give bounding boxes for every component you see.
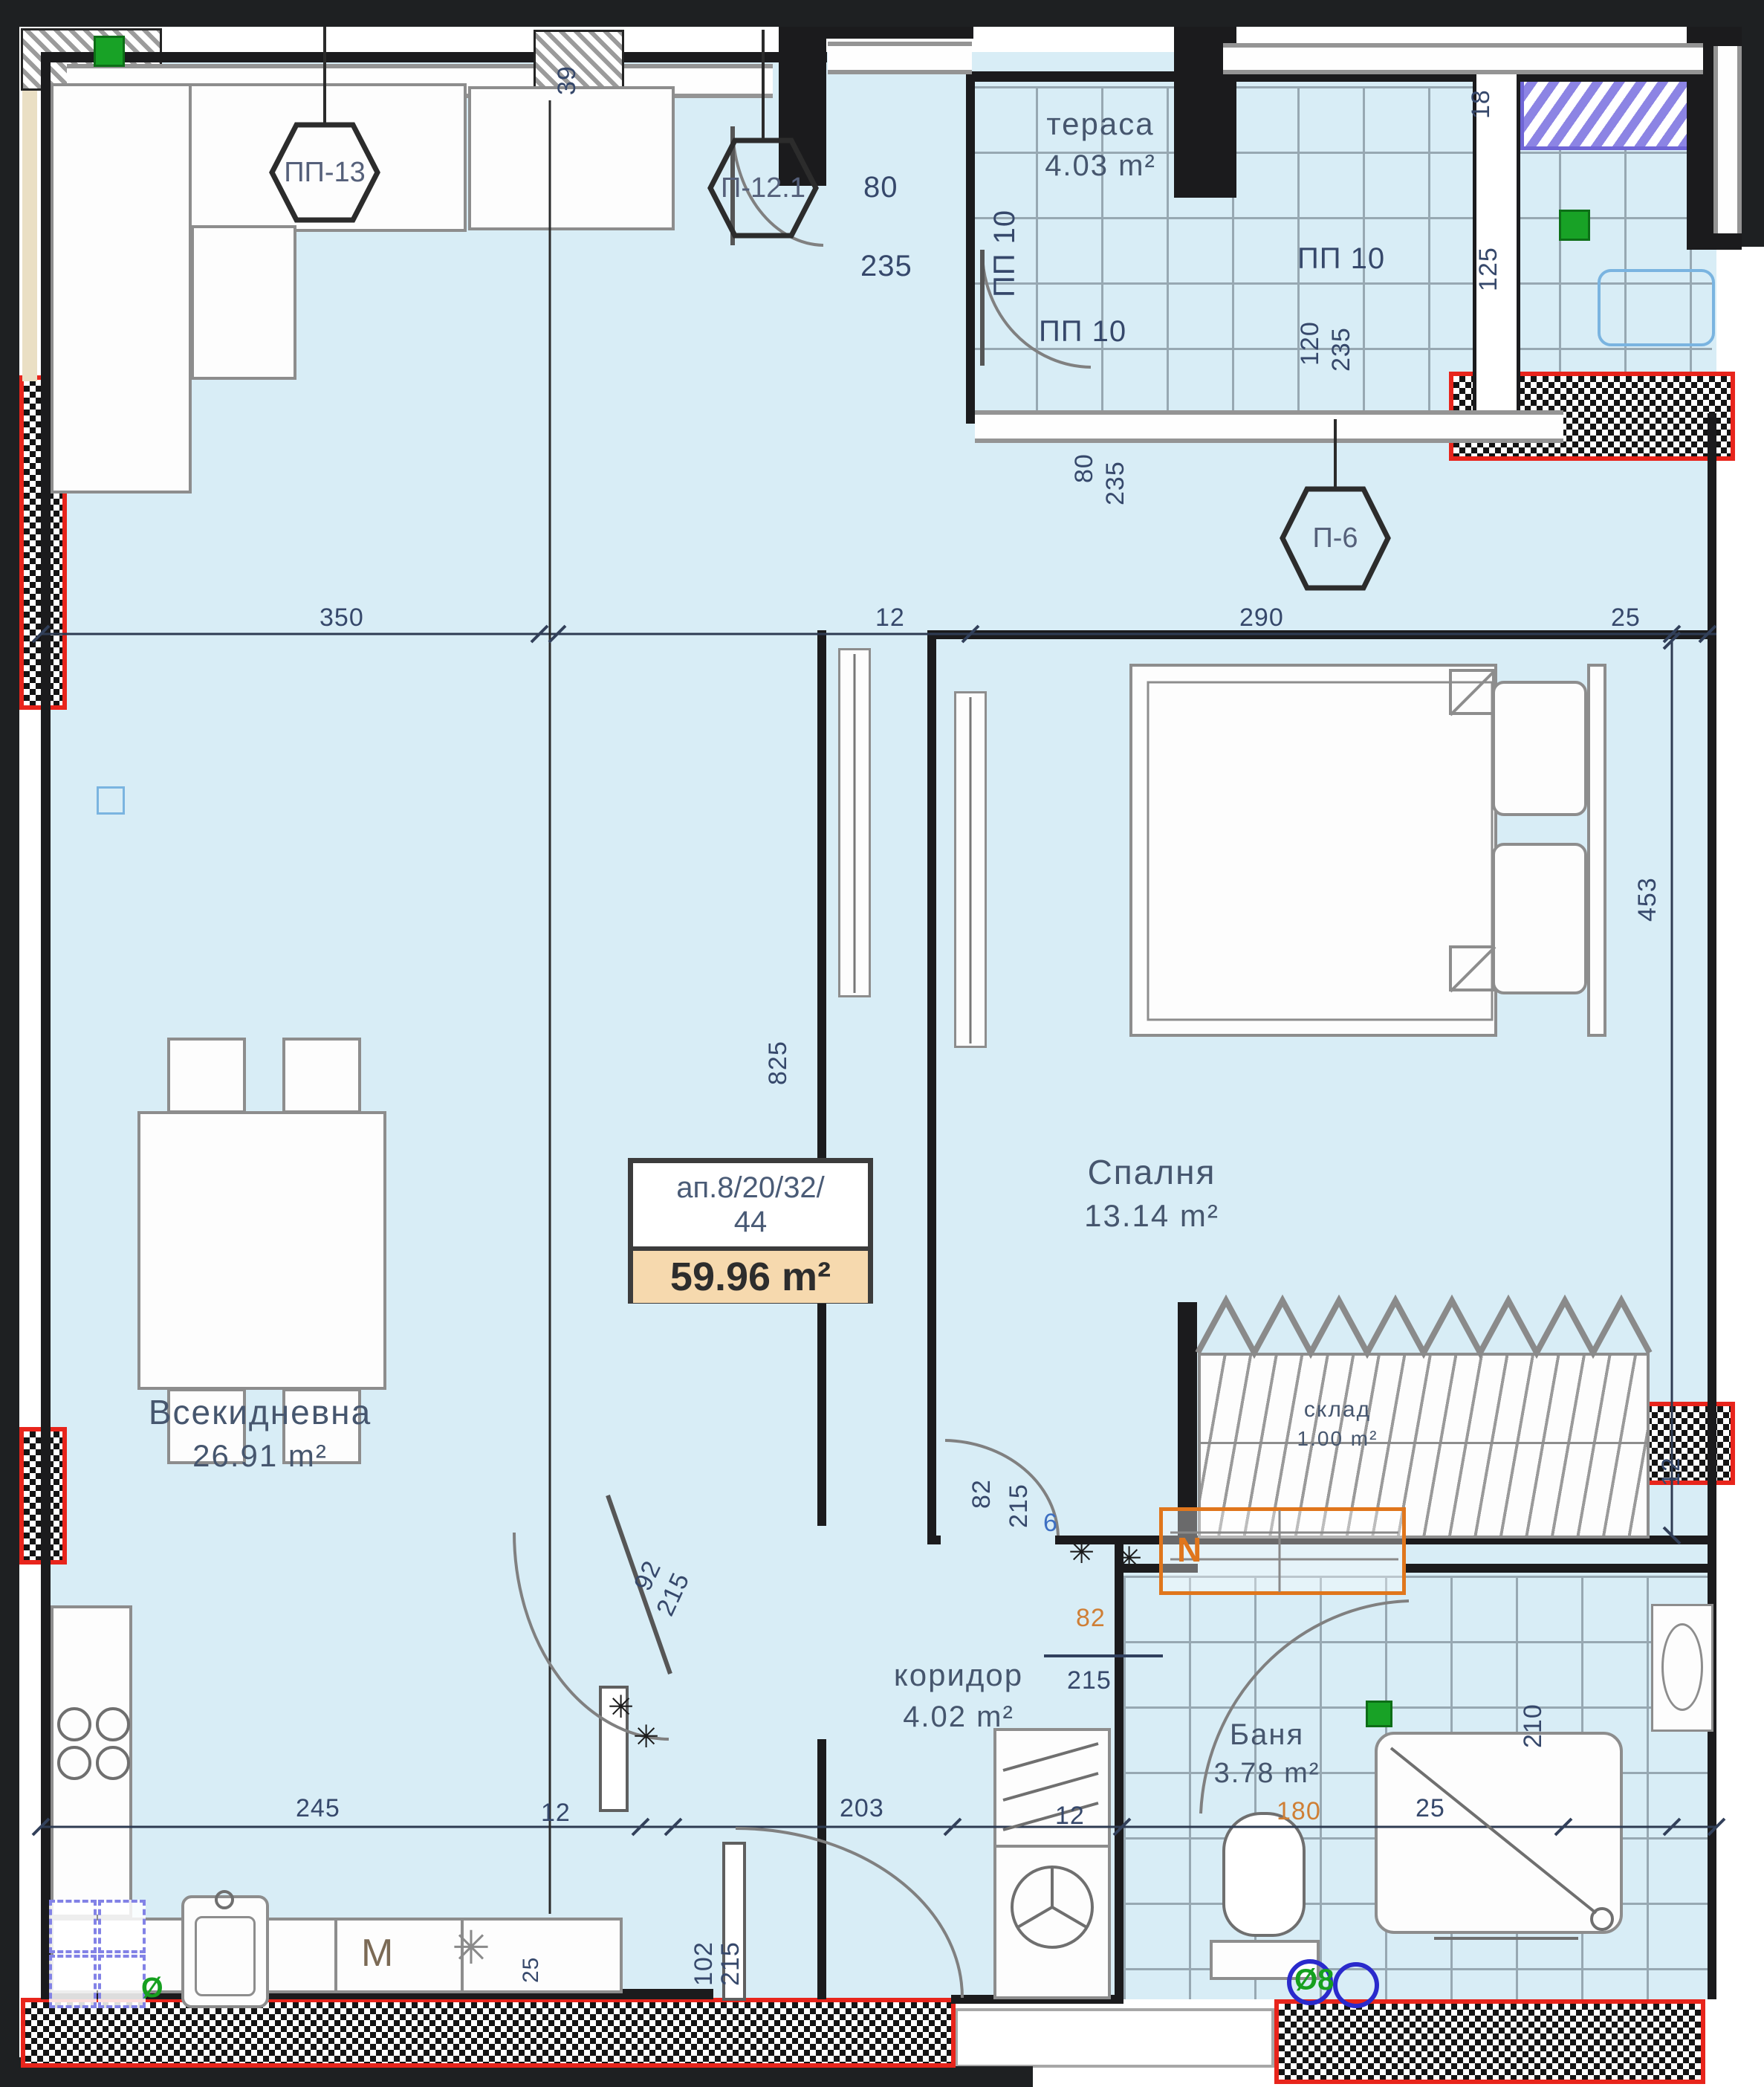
door-tag-pp13: ПП-13 — [269, 120, 380, 224]
fridge-dashed-3 — [49, 1955, 97, 2008]
panel-label-pp10-h1: ПП 10 — [1039, 315, 1126, 349]
dim-18: 18 — [1467, 89, 1496, 119]
unit-label-box: ап.8/20/32/ 44 59.96 m² — [628, 1158, 873, 1304]
frame-bottom-mid — [372, 2066, 1033, 2087]
fridge-dashed-4 — [98, 1955, 146, 2008]
dining-chair-2 — [282, 1038, 361, 1113]
entrance-landing — [955, 2008, 1274, 2068]
door-tag-p121-label: П-12.1 — [707, 136, 819, 240]
dim-125: 125 — [1474, 247, 1503, 291]
duct-shaft-1 — [838, 648, 871, 997]
dim-82-bath-door: 82 — [1076, 1604, 1106, 1633]
bath-area: 3.78 m² — [1181, 1756, 1352, 1792]
label-bedroom: Спалня 13.14 m² — [1040, 1148, 1263, 1237]
wall-living-right-upper — [817, 630, 826, 1526]
dim-825: 825 — [764, 1041, 793, 1085]
dim-80-hall: 80 — [863, 171, 898, 204]
dim-210: 210 — [1519, 1703, 1548, 1748]
storage-name: склад — [1256, 1394, 1419, 1426]
unit-id-line2: 44 — [734, 1205, 768, 1239]
dim-25-kitchen: 25 — [519, 1957, 544, 1983]
sensor-green-bath — [1366, 1701, 1392, 1727]
bedroom-name: Спалня — [1040, 1148, 1263, 1196]
nightstand-1 — [1449, 669, 1495, 715]
bed-pillow-1 — [1492, 681, 1587, 816]
post-mark-icon-1: ✳ — [608, 1689, 634, 1725]
nightstand-2 — [1449, 945, 1495, 991]
dim-80-terrace-door: 80 — [1070, 453, 1099, 483]
counter-divider-2 — [334, 1919, 337, 1992]
drain-phi-icon: Ø — [141, 1973, 163, 2005]
fire-wall-bottom — [21, 1998, 956, 2068]
wall-living-right-lower — [817, 1739, 826, 1999]
unit-area-value: 59.96 m² — [670, 1254, 831, 1300]
toilet-bowl — [1222, 1812, 1306, 1937]
sofa-left — [51, 83, 192, 494]
dim-25-bottom: 25 — [1416, 1794, 1445, 1823]
label-terrace: тераса 4.03 m² — [1015, 103, 1186, 185]
label-living: Всекидневна 26.91 m² — [104, 1388, 416, 1477]
unit-id-line1: ап.8/20/32/ — [676, 1171, 825, 1205]
dim-203: 203 — [840, 1794, 884, 1823]
wall-left — [41, 52, 51, 1999]
terrace-name: тераса — [1015, 103, 1186, 146]
unit-area: 59.96 m² — [633, 1246, 868, 1303]
dim-180: 180 — [1277, 1797, 1321, 1826]
window-terrace-top — [1223, 43, 1703, 74]
post-mark-icon-2: ✳ — [633, 1718, 659, 1755]
corridor-area: 4.02 m² — [855, 1698, 1063, 1736]
dim-12-top: 12 — [875, 604, 905, 632]
dim-120-terrace: 120 — [1296, 321, 1325, 366]
bed-headboard — [1587, 664, 1606, 1037]
fridge-dashed-2 — [98, 1900, 146, 1953]
wall-bedroom-left — [927, 630, 936, 1544]
terrace-area: 4.03 m² — [1015, 146, 1186, 185]
dim-290: 290 — [1239, 604, 1284, 632]
dim-235-terrace: 235 — [1327, 327, 1356, 372]
pipe-diameter-label: Ø8 — [1294, 1964, 1334, 1997]
wall-terrace-left — [966, 74, 975, 424]
kitchen-sink-basin — [195, 1916, 256, 1996]
bed — [1129, 664, 1497, 1037]
fridge-dashed-1 — [49, 1900, 97, 1953]
label-corridor: коридор 4.02 m² — [855, 1654, 1063, 1736]
door-tag-p6-label: П-6 — [1280, 485, 1391, 592]
frame-left — [0, 0, 19, 2087]
exterior-right — [1716, 247, 1764, 2087]
wall-hall-top — [826, 27, 973, 39]
frame-right — [1742, 0, 1764, 247]
wall-right — [1708, 413, 1716, 1999]
hall-cabinet-divider — [993, 1845, 1111, 1848]
panel-n-label: N — [1177, 1530, 1202, 1570]
washer-letter: M — [361, 1931, 393, 1976]
coffee-table — [191, 225, 296, 380]
freezer-snowflake-icon: ✳ — [452, 1921, 490, 1975]
sensor-green-terrace — [1559, 210, 1590, 241]
panel-label-pp10-v: ПП 10 — [988, 210, 1022, 297]
dim-6: 6 — [1043, 1509, 1058, 1538]
dining-chair-1 — [167, 1038, 246, 1113]
bedroom-area: 13.14 m² — [1040, 1196, 1263, 1237]
wall-bedroom-top — [927, 630, 1716, 639]
duct-shaft-2 — [954, 691, 987, 1048]
wall-bath-top-b — [1404, 1564, 1716, 1573]
dim-12-bottom-a: 12 — [541, 1799, 571, 1828]
dim-39: 39 — [553, 65, 582, 95]
dim-215-bedroom-door: 215 — [1005, 1483, 1034, 1528]
post-mark-icon-3: ✳ — [1069, 1534, 1095, 1570]
storage-area: 1.00 m² — [1256, 1426, 1419, 1452]
dim-102-entrance: 102 — [690, 1941, 719, 1986]
dim-25-top: 25 — [1611, 604, 1641, 632]
wall-bath-left — [1115, 1544, 1123, 1999]
wall-storage-bottom-a — [927, 1536, 941, 1544]
shower-tray — [1375, 1732, 1623, 1934]
window-right-vertical — [1713, 46, 1742, 233]
wall-top — [41, 52, 827, 62]
post-mark-icon-4: ✳ — [1116, 1540, 1142, 1576]
label-storage: склад 1.00 m² — [1256, 1394, 1419, 1452]
dining-table — [137, 1111, 386, 1390]
fire-wall-bottom-right — [1274, 1999, 1705, 2084]
dim-82-bedroom-door: 82 — [967, 1479, 996, 1509]
pipe-ring-2 — [1333, 1962, 1379, 2008]
sensor-green-top-left — [94, 36, 125, 67]
sofa-right — [468, 86, 675, 230]
bed-pillow-2 — [1492, 843, 1587, 994]
hall-cabinet-washer-box — [993, 1728, 1111, 1999]
bath-sink-basin — [1661, 1623, 1703, 1711]
dim-245: 245 — [296, 1794, 340, 1823]
kitchen-counter-left — [51, 1605, 132, 1918]
dim-12-bottom-b: 12 — [1055, 1802, 1085, 1831]
floor-plan: ПП-13 П-12.1 П-6 Всекидневна 26.91 m² Сп… — [0, 0, 1764, 2087]
unit-id: ап.8/20/32/ 44 — [633, 1163, 868, 1246]
living-name: Всекидневна — [104, 1388, 416, 1436]
dim-235-hall: 235 — [860, 250, 912, 283]
dim-215-entrance: 215 — [716, 1941, 745, 1986]
rug-marker — [97, 786, 125, 815]
terrace-bench — [1598, 269, 1715, 346]
insulation-strip — [22, 85, 37, 381]
window-terrace-rail — [975, 410, 1563, 443]
dim-215-bath-door: 215 — [1067, 1666, 1112, 1695]
dim-350: 350 — [320, 604, 364, 632]
dim-453: 453 — [1633, 877, 1662, 922]
panel-label-pp10-h2: ПП 10 — [1297, 242, 1385, 276]
frame-top — [0, 0, 1764, 27]
living-area: 26.91 m² — [104, 1436, 416, 1477]
dim-235-terrace-door: 235 — [1101, 461, 1130, 505]
window-hall — [828, 42, 972, 74]
door-tag-p121: П-12.1 — [707, 136, 819, 240]
door-tag-p6: П-6 — [1280, 485, 1391, 592]
bath-name: Баня — [1181, 1714, 1352, 1756]
label-bath: Баня 3.78 m² — [1181, 1714, 1352, 1792]
corridor-name: коридор — [855, 1654, 1063, 1698]
dim-12-storage: 12 — [1657, 1457, 1686, 1486]
door-tag-pp13-label: ПП-13 — [269, 120, 380, 224]
